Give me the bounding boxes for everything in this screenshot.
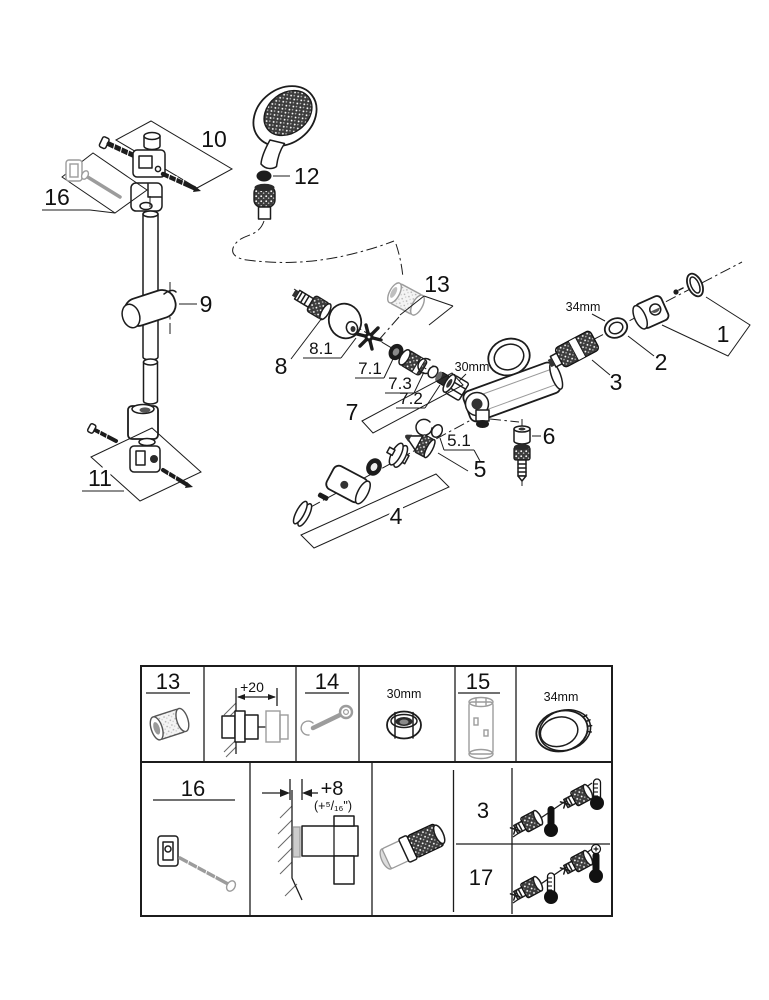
thermometer-hot-icon xyxy=(544,806,558,837)
o-ring-icon xyxy=(363,456,385,479)
check-valve-set-3-icon xyxy=(509,779,604,838)
table-3-label: 3 xyxy=(477,798,489,823)
screw-icon xyxy=(87,423,116,441)
o-ring-5-1-icon xyxy=(430,423,445,439)
size-30mm-label: 30mm xyxy=(455,360,490,374)
cover-ring-icon xyxy=(684,271,707,299)
table-cell-13: 13 xyxy=(146,669,191,741)
table-cell-15: 15 xyxy=(458,669,500,759)
callout-5-1-label: 5.1 xyxy=(447,431,471,450)
callout-1-label: 1 xyxy=(717,321,730,347)
callout-7-1-label: 7.1 xyxy=(358,359,382,378)
callout-13-label: 13 xyxy=(424,271,450,297)
ring-34mm-icon xyxy=(602,315,631,342)
callout-4-label: 4 xyxy=(390,503,403,529)
callout-12-label: 12 xyxy=(294,163,320,189)
parts-diagram-page: 10 16 xyxy=(0,0,769,1000)
valve-body-icon xyxy=(461,333,565,428)
hand-shower-icon xyxy=(242,74,329,169)
outlet-nipple-icon xyxy=(514,426,530,481)
callout-2: 2 xyxy=(628,336,667,375)
cap-nut-icon xyxy=(144,133,160,150)
nut-30mm-icon xyxy=(387,712,421,739)
ring-34mm-icon xyxy=(532,704,596,757)
hose-o-ring-icon xyxy=(257,171,272,182)
callout-9-label: 9 xyxy=(200,291,213,317)
table-17-label: 17 xyxy=(469,865,493,890)
retaining-clip-icon xyxy=(416,419,432,435)
check-valve-set-17-icon xyxy=(509,845,603,905)
screw-icon xyxy=(163,173,201,192)
callout-3: 3 xyxy=(592,360,622,395)
check-valve-icon xyxy=(559,849,595,878)
callout-7-2-label: 7.2 xyxy=(399,389,423,408)
table-cell-16: 16 xyxy=(153,776,237,893)
table-14-label: 14 xyxy=(315,669,339,694)
callout-4: 4 xyxy=(301,474,449,548)
gray-screw-icon xyxy=(180,857,237,893)
table-15-label: 15 xyxy=(466,669,490,694)
table-cell-30mm: 30mm xyxy=(387,687,422,739)
table-16-label: 16 xyxy=(181,776,205,801)
table-30mm-label: 30mm xyxy=(387,687,422,701)
table-cell-14: 14 xyxy=(301,669,352,735)
diverter-cap-icon xyxy=(291,500,314,528)
dim-plus8-inch-label: (+⁵/₁₆") xyxy=(314,799,352,813)
wrench-icon xyxy=(301,706,352,735)
check-valve-icon xyxy=(509,809,545,838)
callout-11-label: 11 xyxy=(88,465,112,491)
wall-plug-icon xyxy=(66,160,82,181)
outlet-axis-line xyxy=(490,419,519,422)
callout-1: 1 xyxy=(662,297,750,356)
callout-5: 5.1 5 xyxy=(438,431,486,482)
thermometer-scale-icon xyxy=(544,873,558,904)
handle-screw-icon xyxy=(289,285,333,321)
table-34mm-label: 34mm xyxy=(544,690,579,704)
extension-sleeve-icon xyxy=(469,698,493,759)
callout-7-group: 7.1 7.3 7.2 7 xyxy=(346,359,463,433)
accessory-table xyxy=(141,666,612,916)
dim-plus8-label: +8 xyxy=(321,778,344,800)
callout-9: 9 xyxy=(179,291,212,317)
callout-8-1-label: 8.1 xyxy=(309,339,333,358)
rail-foot-clamp xyxy=(130,446,160,472)
glider-bracket-icon xyxy=(133,150,165,177)
rail-foot-block xyxy=(128,405,158,446)
adapter-icon xyxy=(377,821,449,873)
callout-2-label: 2 xyxy=(655,349,668,375)
callout-16-label: 16 xyxy=(44,184,70,210)
screw-icon xyxy=(163,469,193,488)
hose-connector-icon xyxy=(254,184,275,219)
callout-10-label: 10 xyxy=(201,126,227,152)
size-34mm-label: 34mm xyxy=(566,300,601,314)
check-valve-icon xyxy=(559,783,595,812)
dim-plus20-label: +20 xyxy=(240,679,264,695)
wall-plug-icon xyxy=(158,836,178,866)
check-valve-icon xyxy=(509,875,545,904)
hose-to-cap-line xyxy=(396,244,403,278)
callout-6: 6 xyxy=(532,423,555,449)
table-cell-plus20: +20 xyxy=(222,679,288,757)
shower-hose-line xyxy=(233,221,394,262)
rail-clamp-icon xyxy=(131,183,162,211)
callout-5-label: 5 xyxy=(474,456,487,482)
exploded-parts-diagram: 10 16 xyxy=(0,0,769,1000)
callout-7-label: 7 xyxy=(346,399,359,425)
size-34mm-label-group: 34mm xyxy=(566,300,605,321)
table-cell-34mm: 34mm xyxy=(532,690,596,757)
callout-3-label: 3 xyxy=(610,369,623,395)
callout-6-label: 6 xyxy=(543,423,556,449)
pin-icon xyxy=(673,288,683,295)
diverter-housing-icon xyxy=(324,464,373,507)
table-13-label: 13 xyxy=(156,669,180,694)
table-cell-plus8: +8 (+⁵/₁₆") xyxy=(262,778,358,900)
cap-nut-icon xyxy=(148,707,192,742)
callout-8-label: 8 xyxy=(275,353,288,379)
